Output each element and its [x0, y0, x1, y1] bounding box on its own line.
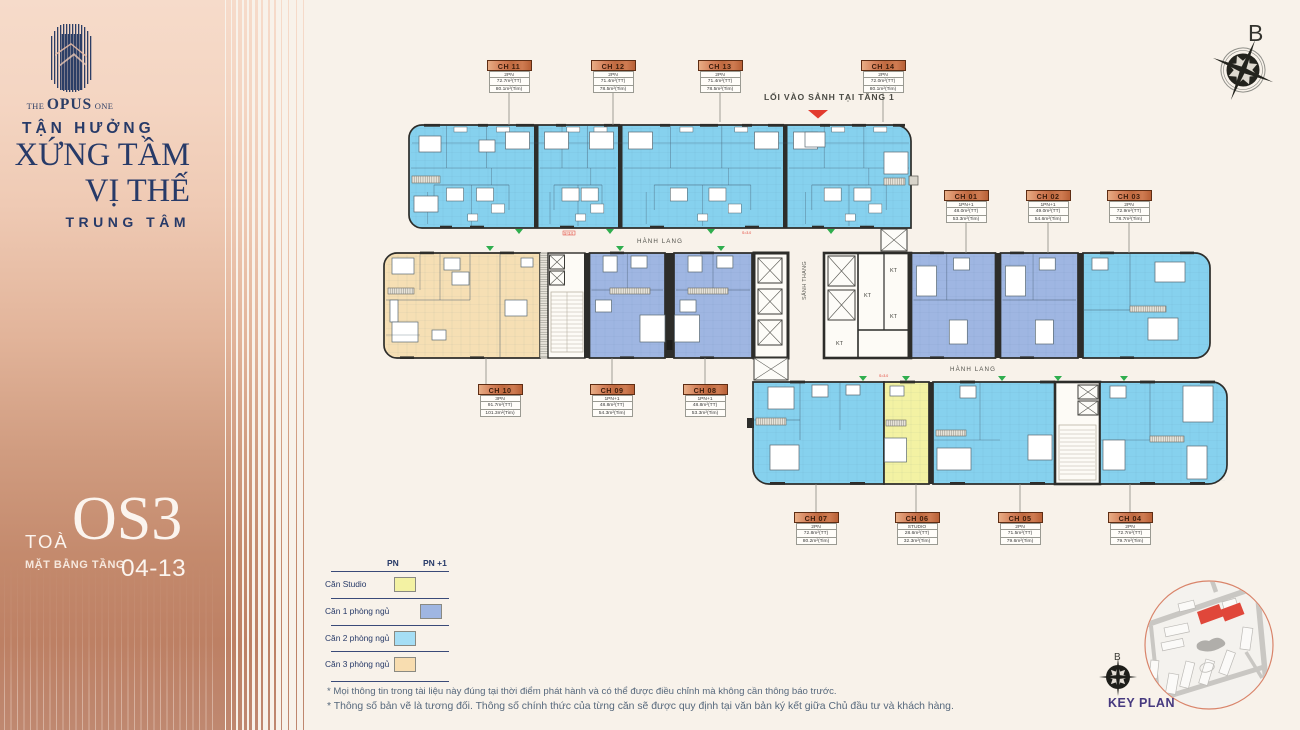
- svg-text:KT: KT: [890, 314, 898, 320]
- svg-text:HÀNH LANG: HÀNH LANG: [950, 366, 996, 373]
- svg-text:B: B: [1248, 20, 1263, 46]
- svg-text:S=3.0: S=3.0: [879, 374, 888, 378]
- svg-text:SẢNH THANG: SẢNH THANG: [801, 261, 808, 300]
- svg-text:HÀNH LANG: HÀNH LANG: [637, 238, 683, 245]
- svg-text:KT: KT: [836, 341, 844, 347]
- svg-text:KT: KT: [890, 268, 898, 274]
- svg-text:B: B: [1114, 652, 1121, 663]
- svg-text:S=3.0: S=3.0: [742, 231, 751, 235]
- svg-text:S=3.0: S=3.0: [564, 232, 573, 236]
- svg-text:KT: KT: [864, 293, 872, 299]
